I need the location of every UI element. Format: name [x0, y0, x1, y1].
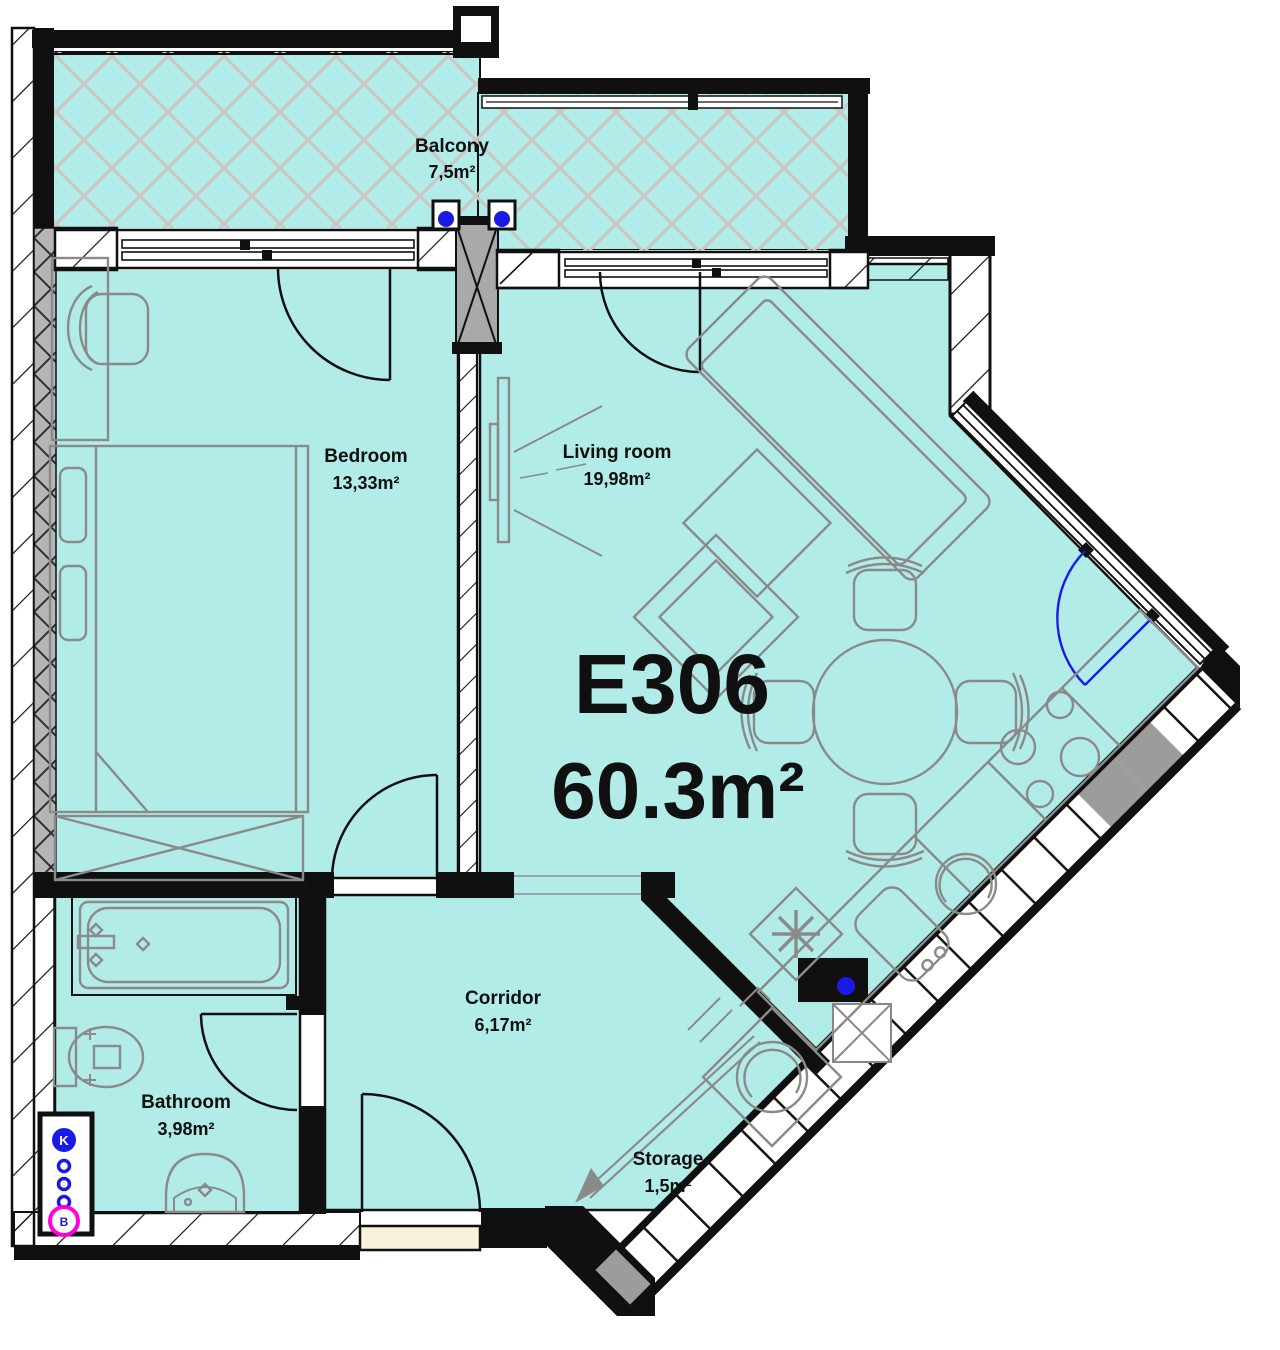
bathroom-area: 3,98m²	[157, 1119, 214, 1139]
riser-k-label: K	[59, 1133, 69, 1148]
riser-pipe-icon	[59, 1161, 70, 1172]
balcony-right-wall	[848, 78, 868, 246]
balcony-left-wall	[34, 28, 54, 230]
unit-total-area: 60.3m²	[551, 746, 804, 835]
bathroom-name: Bathroom	[141, 1092, 231, 1113]
bedroom-window-glass	[122, 240, 414, 248]
storage-name: Storage	[633, 1149, 704, 1170]
water-tap-icon	[837, 977, 855, 995]
corridor-name: Corridor	[465, 988, 542, 1009]
living-room-name: Living room	[563, 442, 672, 463]
bottom-wall-black-band	[14, 1246, 360, 1260]
unit-id: E306	[574, 637, 770, 731]
storage-area: 1,5m²	[644, 1176, 691, 1196]
balcony-parapet-right-section	[478, 78, 870, 94]
drain-icon2	[494, 211, 510, 227]
bedroom-window-pier-right	[418, 228, 458, 270]
tub-nook-stub	[286, 996, 326, 1010]
riser-b-label: B	[60, 1215, 69, 1229]
right-vertical-wall	[950, 254, 990, 414]
bedroom-name: Bedroom	[324, 446, 407, 467]
balcony-area: 7,5m²	[428, 162, 475, 182]
corridor-area: 6,17m²	[474, 1015, 531, 1035]
floor-areas	[48, 52, 1200, 1213]
living-window-block-left	[497, 250, 559, 288]
balcony-parapet-top	[32, 30, 460, 48]
drain-icon	[438, 211, 454, 227]
left-wall-hatch-band	[12, 28, 34, 1246]
entrance-threshold	[360, 1226, 480, 1250]
balcony-tile-hatch2	[478, 93, 850, 250]
bedroom-corridor-wall	[436, 872, 514, 898]
riser-pipe-icon2	[59, 1179, 70, 1190]
riser-shaft: K B	[40, 1114, 92, 1235]
kitchen-corner-block	[798, 958, 868, 1002]
balcony-name: Balcony	[415, 136, 489, 157]
living-room-area: 19,98m²	[583, 469, 650, 489]
living-corridor-opening	[514, 870, 641, 900]
bedroom-area: 13,33m²	[332, 473, 399, 493]
floor-plan-page: K B Balcony 7,5m² Bedroom 13,33m² Living…	[0, 0, 1280, 1350]
living-window-pier-right	[830, 250, 868, 288]
floor-plan-drawing: K B Balcony 7,5m² Bedroom 13,33m² Living…	[0, 0, 1280, 1350]
bedroom-living-wall	[459, 348, 477, 878]
bathroom-right-wall-lower	[300, 1106, 326, 1214]
entrance-right-post	[481, 1208, 547, 1248]
